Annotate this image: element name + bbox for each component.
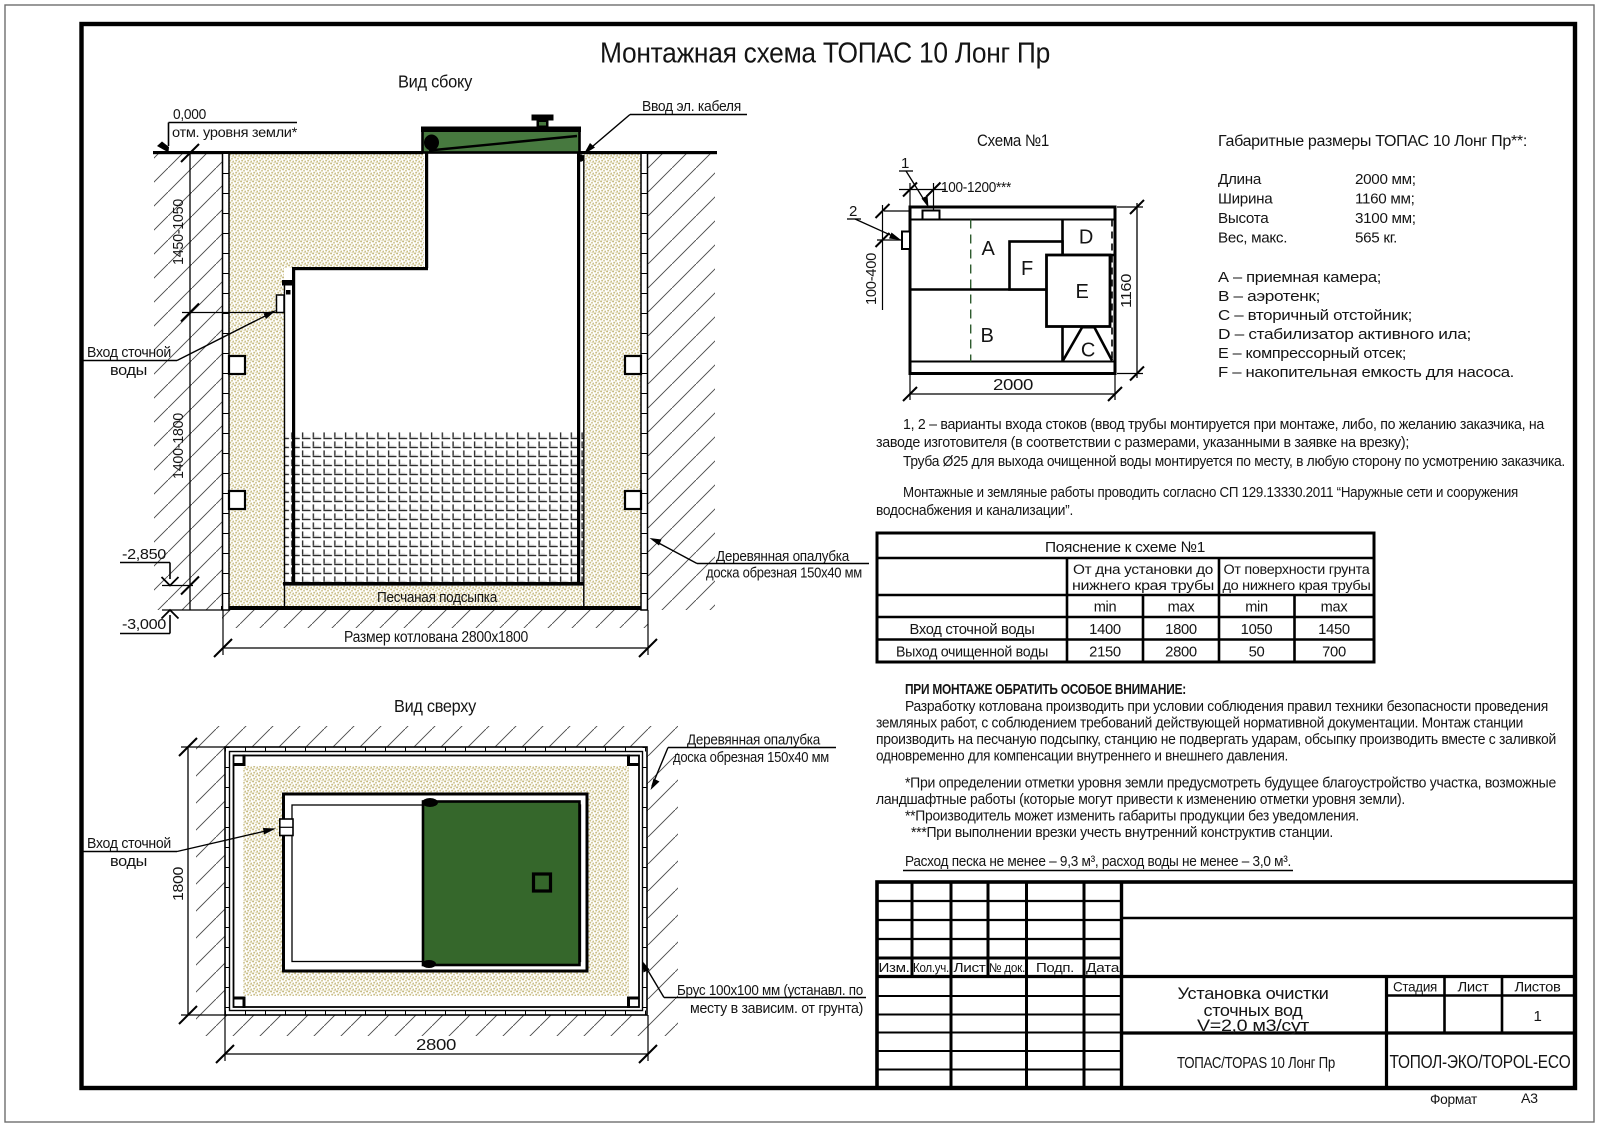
- svg-text:50: 50: [1249, 645, 1265, 661]
- svg-text:заводе изготовителя (в соответ: заводе изготовителя (в соответствии с ра…: [876, 434, 1409, 451]
- svg-text:Ширина: Ширина: [1218, 191, 1273, 208]
- svg-text:Размер котлована 2800х1800: Размер котлована 2800х1800: [344, 629, 529, 646]
- svg-text:1160 мм;: 1160 мм;: [1355, 191, 1415, 208]
- svg-text:1800: 1800: [171, 867, 187, 901]
- svg-text:От дна установки до: От дна установки до: [1073, 562, 1213, 578]
- svg-text:Вид сверху: Вид сверху: [394, 696, 477, 716]
- svg-text:Брус 100х100 мм (устанавл. по: Брус 100х100 мм (устанавл. по: [677, 983, 863, 999]
- svg-text:D: D: [1079, 227, 1093, 249]
- svg-text:С – вторичный отстойник;: С – вторичный отстойник;: [1218, 307, 1412, 324]
- svg-text:3100 мм;: 3100 мм;: [1355, 210, 1416, 227]
- svg-text:Габаритные размеры ТОПАС 10 Ло: Габаритные размеры ТОПАС 10 Лонг Пр**:: [1218, 133, 1527, 150]
- svg-text:Труба Ø25 для выхода очищенной: Труба Ø25 для выхода очищенной воды монт…: [903, 453, 1565, 470]
- svg-text:От поверхности грунта: От поверхности грунта: [1224, 562, 1370, 578]
- svg-text:ландшафтные работы (которые мо: ландшафтные работы (которые могут привес…: [876, 791, 1405, 808]
- svg-text:**Производитель может изменить: **Производитель может изменить габариты …: [905, 808, 1359, 825]
- svg-text:2000 мм;: 2000 мм;: [1355, 171, 1416, 188]
- svg-text:доска обрезная 150х40 мм: доска обрезная 150х40 мм: [673, 750, 829, 766]
- svg-text:воды: воды: [110, 854, 147, 870]
- svg-text:2150: 2150: [1089, 645, 1121, 661]
- svg-text:F: F: [1021, 258, 1033, 280]
- svg-text:E – компрессорный отсек;: E – компрессорный отсек;: [1218, 345, 1406, 362]
- svg-text:Пояснение к схеме №1: Пояснение к схеме №1: [1045, 539, 1205, 556]
- svg-text:доска обрезная 150х40 мм: доска обрезная 150х40 мм: [706, 566, 862, 582]
- svg-text:2800: 2800: [416, 1037, 457, 1054]
- svg-text:ТОПОЛ-ЭКО/TOPOL-ECO: ТОПОЛ-ЭКО/TOPOL-ECO: [1390, 1051, 1571, 1072]
- svg-text:1: 1: [901, 155, 909, 172]
- svg-text:одновременно для компенсации в: одновременно для компенсации внутреннего…: [876, 748, 1288, 765]
- svg-text:до нижнего края трубы: до нижнего края трубы: [1223, 578, 1371, 594]
- svg-text:Стадия: Стадия: [1393, 980, 1437, 995]
- svg-text:1450-1050: 1450-1050: [171, 199, 187, 265]
- svg-text:воды: воды: [110, 363, 147, 379]
- svg-text:1450: 1450: [1318, 622, 1350, 638]
- svg-text:Монтажные и земляные работы пр: Монтажные и земляные работы проводить со…: [903, 484, 1518, 501]
- svg-text:Вес, макс.: Вес, макс.: [1218, 230, 1287, 247]
- svg-text:*При определении отметки уровн: *При определении отметки уровня земли пр…: [905, 775, 1556, 792]
- svg-text:Лист: Лист: [954, 960, 987, 975]
- svg-text:F – накопительная емкость для: F – накопительная емкость для насоса.: [1218, 364, 1514, 381]
- svg-text:Подп.: Подп.: [1036, 960, 1074, 975]
- svg-text:отм. уровня земли*: отм. уровня земли*: [172, 125, 298, 141]
- svg-text:Длина: Длина: [1218, 171, 1262, 188]
- svg-text:1160: 1160: [1119, 274, 1135, 308]
- svg-text:Выход очищенной воды: Выход очищенной воды: [896, 645, 1048, 661]
- svg-text:2800: 2800: [1165, 645, 1197, 661]
- svg-text:Высота: Высота: [1218, 210, 1269, 227]
- svg-text:ТОПАС/TOPAS 10 Лонг Пр: ТОПАС/TOPAS 10 Лонг Пр: [1177, 1055, 1335, 1072]
- svg-text:Расход песка не менее – 9,3 м³: Расход песка не менее – 9,3 м³, расход в…: [905, 853, 1291, 870]
- svg-text:водоснабжения и канализации”.: водоснабжения и канализации”.: [876, 502, 1073, 519]
- svg-text:Монтажная схема ТОПАС 10 Лонг: Монтажная схема ТОПАС 10 Лонг Пр: [600, 38, 1050, 70]
- svg-text:1, 2 – варианты входа стоков: 1, 2 – варианты входа стоков (ввод трубы…: [903, 416, 1545, 433]
- svg-text:Ввод эл. кабеля: Ввод эл. кабеля: [642, 99, 741, 115]
- svg-text:2000: 2000: [993, 377, 1034, 394]
- svg-text:Лист: Лист: [1458, 980, 1490, 995]
- svg-text:месту в зависим. от грунта): месту в зависим. от грунта): [690, 1001, 863, 1017]
- svg-text:565 кг.: 565 кг.: [1355, 230, 1397, 247]
- svg-text:А – приемная камера;: А – приемная камера;: [1218, 269, 1381, 286]
- svg-text:А3: А3: [1521, 1091, 1538, 1107]
- svg-text:V=2,0 м3/сут: V=2,0 м3/сут: [1197, 1016, 1310, 1035]
- svg-text:Вход сточной: Вход сточной: [87, 345, 171, 361]
- svg-text:Дата: Дата: [1086, 960, 1120, 975]
- svg-text:1050: 1050: [1241, 622, 1273, 638]
- svg-text:Вход сточной: Вход сточной: [87, 836, 171, 852]
- svg-text:Вход сточной воды: Вход сточной воды: [910, 622, 1035, 638]
- svg-text:0,000: 0,000: [173, 107, 206, 123]
- svg-text:max: max: [1321, 600, 1349, 616]
- svg-text:Схема №1: Схема №1: [977, 132, 1049, 150]
- svg-text:Формат: Формат: [1430, 1092, 1478, 1108]
- svg-text:Листов: Листов: [1515, 980, 1561, 995]
- svg-text:земляных работ, с соблюдением: земляных работ, с соблюдением требований…: [876, 715, 1523, 732]
- svg-text:B: B: [980, 325, 993, 347]
- svg-text:ПРИ МОНТАЖЕ ОБРАТИТЬ ОСОБОЕ ВН: ПРИ МОНТАЖЕ ОБРАТИТЬ ОСОБОЕ ВНИМАНИЕ:: [905, 681, 1186, 698]
- svg-text:2: 2: [849, 203, 857, 220]
- svg-text:C: C: [1081, 340, 1095, 362]
- svg-text:производить на песчаную подсып: производить на песчаную подсыпку, станци…: [876, 731, 1556, 748]
- svg-text:-3,000: -3,000: [122, 617, 166, 633]
- svg-text:1800: 1800: [1165, 622, 1197, 638]
- svg-text:Разработку котлована производи: Разработку котлована производить при усл…: [905, 698, 1548, 715]
- svg-text:min: min: [1094, 600, 1117, 616]
- svg-text:100-400: 100-400: [864, 253, 880, 305]
- svg-text:Кол.уч.: Кол.уч.: [913, 960, 949, 975]
- svg-text:1400-1800: 1400-1800: [171, 413, 187, 479]
- svg-text:В – аэротенк;: В – аэротенк;: [1218, 288, 1320, 305]
- svg-text:700: 700: [1322, 645, 1346, 661]
- svg-text:-2,850: -2,850: [122, 547, 166, 563]
- svg-text:нижнего края трубы: нижнего края трубы: [1072, 578, 1214, 594]
- svg-text:max: max: [1168, 600, 1196, 616]
- svg-text:Изм.: Изм.: [879, 960, 910, 975]
- svg-text:Деревянная опалубка: Деревянная опалубка: [687, 733, 821, 749]
- svg-text:100-1200***: 100-1200***: [941, 180, 1012, 196]
- svg-text:E: E: [1075, 281, 1088, 303]
- svg-text:min: min: [1245, 600, 1268, 616]
- svg-text:1: 1: [1533, 1008, 1541, 1025]
- svg-text:Деревянная опалубка: Деревянная опалубка: [716, 549, 850, 565]
- svg-text:***При выполнении врезки учест: ***При выполнении врезки учесть внутренн…: [911, 824, 1333, 841]
- svg-text:Песчаная подсыпка: Песчаная подсыпка: [377, 589, 498, 606]
- svg-text:№ док.: № док.: [989, 960, 1025, 975]
- svg-text:1400: 1400: [1089, 622, 1121, 638]
- svg-text:A: A: [981, 238, 995, 260]
- svg-text:D – стабилизатор активного ила: D – стабилизатор активного ила;: [1218, 326, 1471, 343]
- svg-text:Вид сбоку: Вид сбоку: [398, 72, 473, 92]
